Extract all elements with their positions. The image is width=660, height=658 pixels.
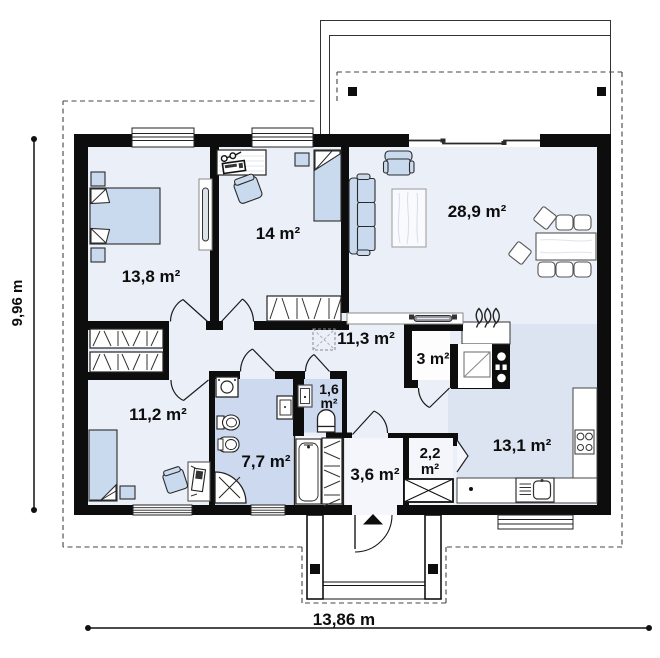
- svg-text:11,3 m²: 11,3 m²: [337, 329, 395, 348]
- svg-text:13,1 m²: 13,1 m²: [493, 436, 552, 455]
- svg-text:13,86 m: 13,86 m: [313, 610, 375, 629]
- svg-text:2,2: 2,2: [420, 445, 441, 462]
- svg-text:3 m²: 3 m²: [417, 351, 450, 368]
- svg-text:28,9 m²: 28,9 m²: [448, 202, 507, 221]
- svg-text:7,7 m²: 7,7 m²: [241, 452, 290, 471]
- svg-text:13,8 m²: 13,8 m²: [122, 267, 181, 286]
- svg-text:m²: m²: [320, 395, 337, 411]
- svg-text:9,96 m: 9,96 m: [9, 280, 26, 327]
- svg-text:14 m²: 14 m²: [256, 224, 301, 243]
- svg-text:11,2 m²: 11,2 m²: [129, 405, 187, 424]
- svg-text:m²: m²: [421, 461, 439, 478]
- svg-text:3,6 m²: 3,6 m²: [350, 465, 399, 484]
